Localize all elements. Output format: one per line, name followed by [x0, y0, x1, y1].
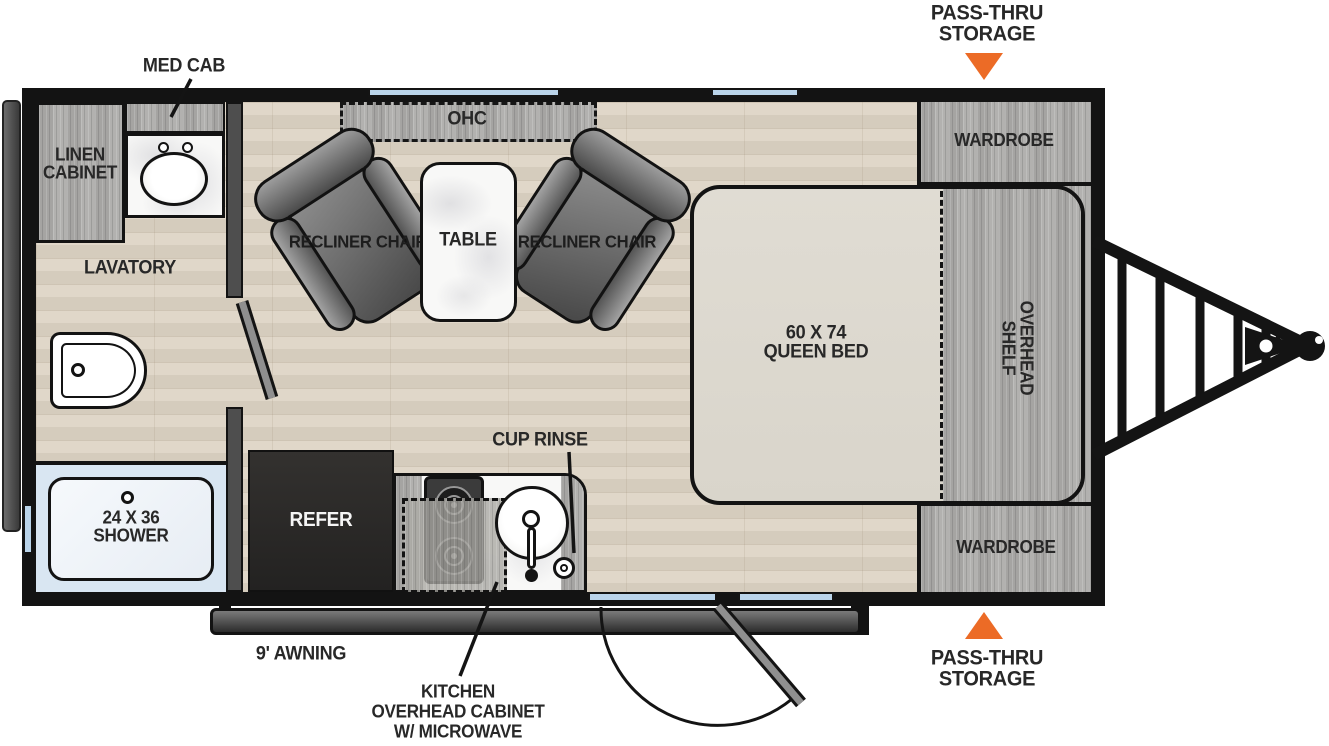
entry-door-face [718, 606, 801, 703]
pass-thru-storage-top-label: PASS-THRU STORAGE [931, 3, 1043, 44]
kitchen-overhead-label: KITCHEN OVERHEAD CABINET W/ MICROWAVE [371, 682, 544, 741]
jack-bolt [1252, 336, 1257, 341]
overlay-graphics [0, 0, 1329, 746]
ohc-label: OHC [447, 111, 486, 130]
floorplan: RECLINER CHAIR RECLINER CHAIR [0, 0, 1329, 746]
cup-rinse-leader-line [569, 452, 574, 553]
pass-thru-arrow-top [965, 53, 1003, 80]
shower-label: 24 X 36 SHOWER [93, 509, 168, 544]
queen-bed-label: 60 X 74 QUEEN BED [764, 324, 869, 361]
jack-bolt [1276, 336, 1281, 341]
pass-thru-arrow-bottom [965, 612, 1003, 639]
jack-bolt [1264, 357, 1269, 362]
lavatory-label: LAVATORY [84, 260, 176, 279]
overhead-shelf-label: OVERHEAD SHELF [999, 301, 1034, 396]
hitch-coupler [1295, 331, 1325, 361]
linen-cabinet-label: LINEN CABINET [43, 146, 117, 181]
wardrobe-bottom-label: WARDROBE [956, 539, 1055, 557]
wardrobe-top-label: WARDROBE [954, 132, 1053, 150]
bathroom-door-face [242, 302, 272, 398]
med-cab-label: MED CAB [143, 58, 225, 77]
refer-label: REFER [290, 511, 353, 531]
tongue-jack [1257, 337, 1275, 355]
kitchen-ohc-leader-line [460, 582, 497, 676]
pass-thru-storage-bottom-label: PASS-THRU STORAGE [931, 648, 1043, 689]
table-label: TABLE [439, 232, 496, 251]
awning-label: 9' AWNING [256, 646, 346, 665]
cup-rinse-label: CUP RINSE [492, 432, 587, 451]
coupler-highlight [1315, 336, 1323, 344]
med-cab-leader-line [171, 79, 191, 117]
